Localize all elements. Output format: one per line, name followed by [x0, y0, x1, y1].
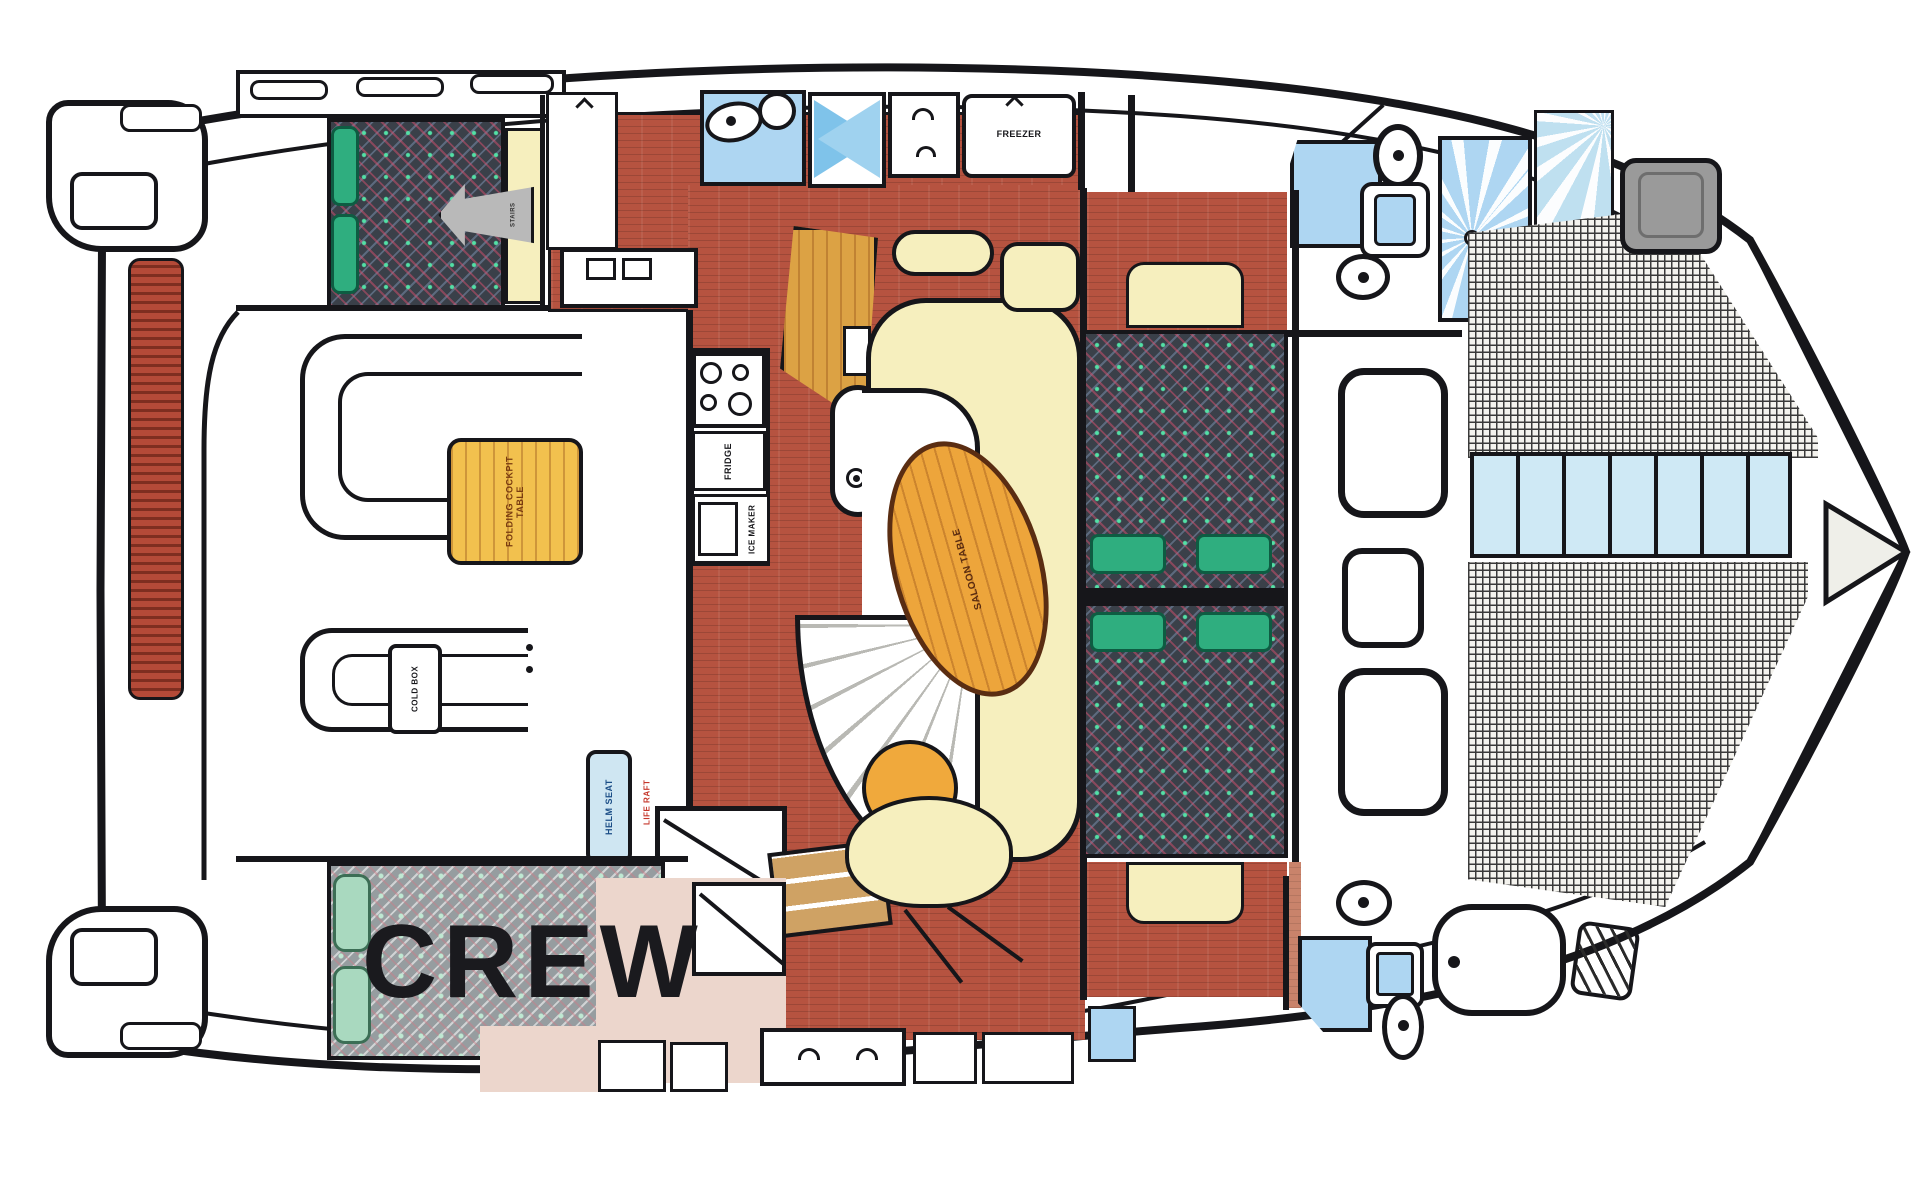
br-cabinet-blue [1376, 952, 1414, 996]
galley-end-wall [1078, 92, 1085, 190]
bottom-locker [982, 1032, 1074, 1084]
bathtub-drain [1448, 956, 1460, 968]
br-sink-drain [1398, 1020, 1409, 1031]
headboard-bottom [1126, 862, 1244, 924]
deck-hatch [1338, 368, 1448, 518]
deck-hatch [1342, 548, 1424, 648]
locker-door [250, 80, 328, 100]
stove-burner-icon [700, 362, 722, 384]
post-base-dot [853, 475, 860, 482]
bow-deck-hatch-inner [1638, 172, 1704, 238]
stove-burner-icon [700, 394, 717, 411]
stern-seat-top [120, 104, 202, 132]
headboard-top [1126, 262, 1244, 328]
chart-seat [892, 230, 994, 276]
cabin-galley-wall [540, 95, 545, 308]
ice-maker-label: ICE MAKER [738, 498, 766, 560]
nav-seat-back [845, 796, 1013, 908]
stern-locker-bottom [70, 928, 158, 986]
bath-sink-drain [1358, 272, 1369, 283]
bath-mat-ribbed [1569, 920, 1641, 1002]
pillow [1196, 534, 1272, 574]
cold-box-label: COLD BOX [394, 650, 436, 728]
crew-label: CREW [362, 900, 782, 1040]
cockpit-table-label: FOLDING COCKPIT TABLE [485, 447, 545, 557]
bottom-locker [913, 1032, 977, 1084]
deck-hatch [1338, 668, 1448, 816]
counter-sink [586, 258, 616, 280]
sink-drain [726, 116, 736, 126]
locker-door [470, 74, 554, 94]
galley-entry [546, 92, 618, 250]
table-hinge [524, 642, 535, 653]
br-toilet-dot [1358, 897, 1369, 908]
bottom-sink-blue [1088, 1006, 1136, 1062]
helm-seat-label: HELM SEAT [592, 756, 626, 858]
pillow [1196, 612, 1272, 652]
toilet-tank-lid [1374, 194, 1416, 246]
saloon-sofa-arm [1000, 242, 1080, 312]
ice-maker-door [698, 502, 738, 556]
boarding-plank [128, 258, 184, 700]
beds-divider [1082, 592, 1288, 602]
stern-locker-top [70, 172, 158, 230]
pillow [331, 214, 359, 294]
locker-door [356, 77, 444, 97]
pillow [1090, 612, 1166, 652]
bottom-locker [598, 1040, 666, 1092]
counter-sink [622, 258, 652, 280]
table-hinge [524, 664, 535, 675]
stern-seat-bottom [120, 1022, 202, 1050]
freezer-label: FREEZER [970, 124, 1068, 144]
saloon-front-wall [686, 310, 693, 882]
stove-burner-icon [728, 392, 752, 416]
pillow [1090, 534, 1166, 574]
pillow [331, 126, 359, 206]
galley-cabinet [888, 92, 960, 178]
stove-box [692, 352, 766, 428]
cockpit-table: FOLDING COCKPIT TABLE [447, 438, 583, 565]
stairs-label: STAIRS [505, 184, 523, 246]
saloon-table-label: SALOON TABLE [928, 491, 1008, 646]
coachroof-window-band [1470, 452, 1792, 558]
bottom-locker [670, 1042, 728, 1092]
stove-burner-icon [732, 364, 749, 381]
catamaran-floorplan: STAIRS FREEZER FRIDGE ICE MAKER [0, 0, 1920, 1188]
fridge-label: FRIDGE [710, 434, 746, 488]
toilet-dot [1393, 150, 1404, 161]
vanity-mirror-circle [758, 92, 796, 130]
